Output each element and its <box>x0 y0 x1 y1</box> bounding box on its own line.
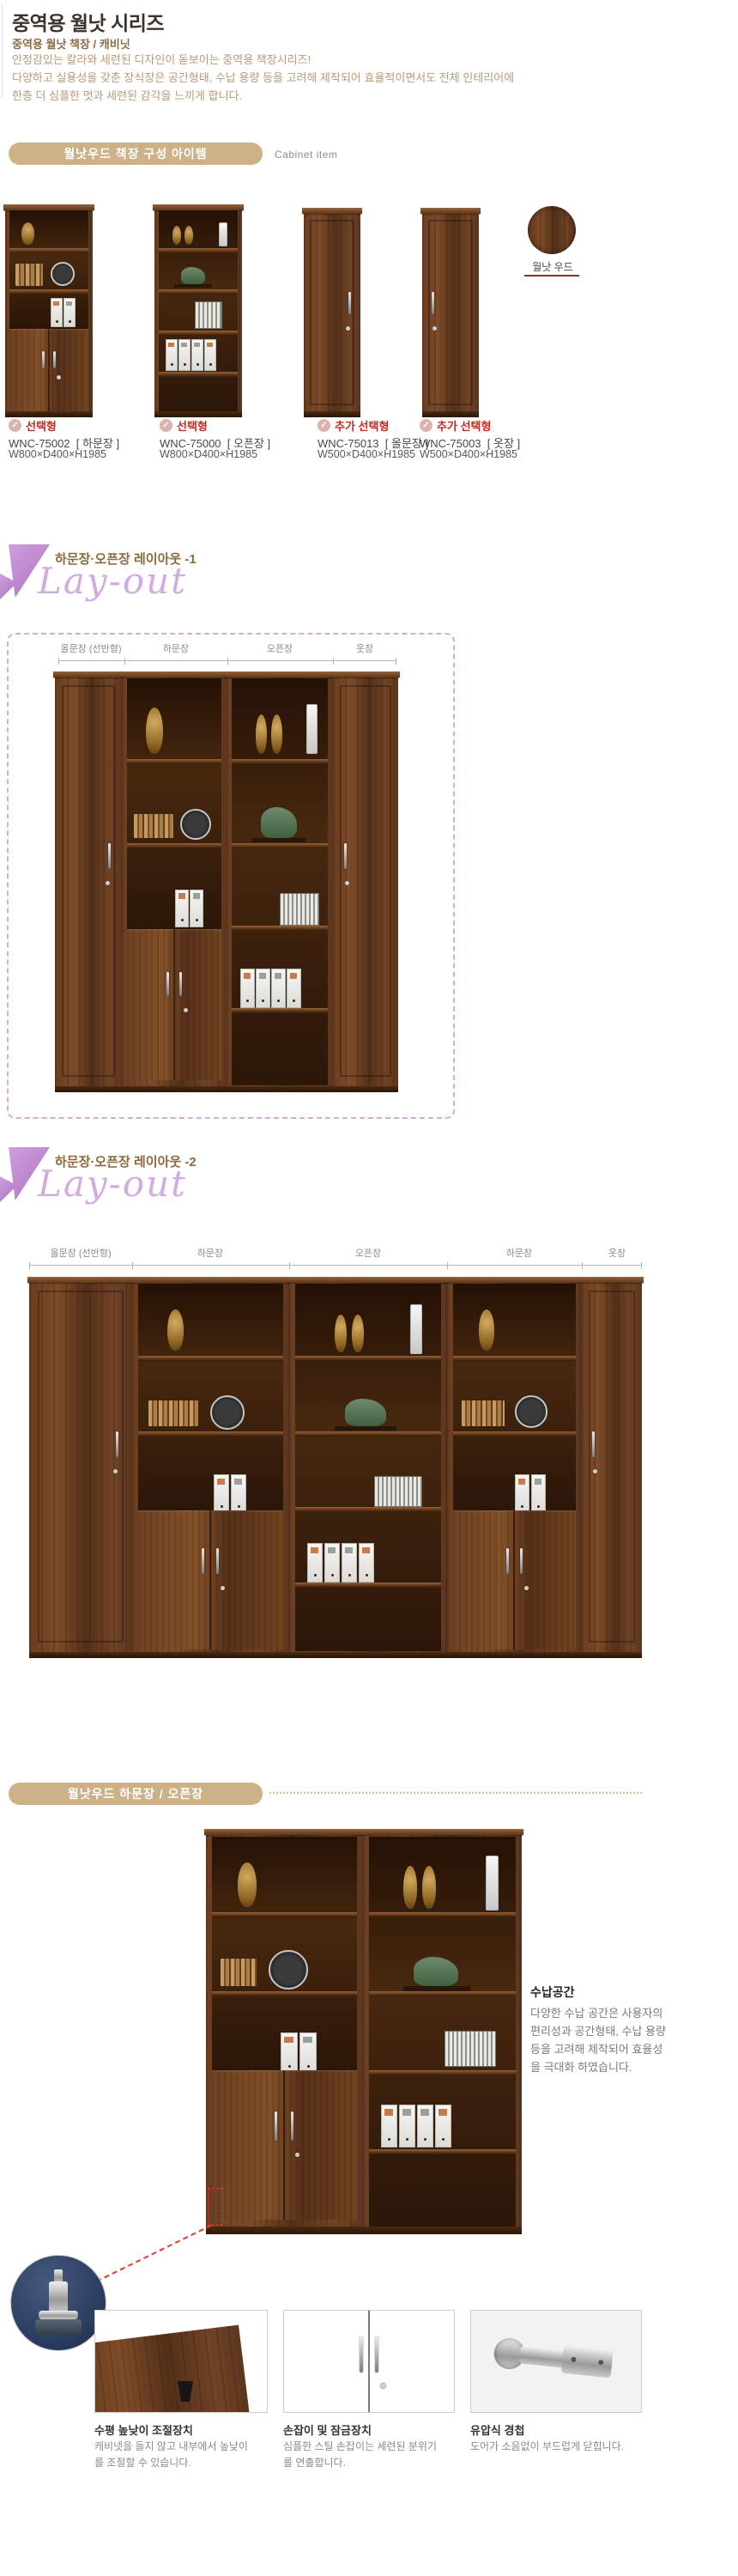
cabinet-crown <box>130 1277 291 1283</box>
award-plate <box>51 262 75 286</box>
detail-photo <box>206 1829 522 2234</box>
dotted-line <box>269 1792 642 1794</box>
shelf <box>295 1507 441 1512</box>
callout-rectangle <box>208 2188 223 2226</box>
cabinet-doors <box>9 329 88 411</box>
storage-line-3: 등을 고려해 제작되어 효율성 <box>530 2040 666 2058</box>
binder <box>399 2105 415 2148</box>
cabinet-plinth <box>5 411 93 417</box>
binder <box>175 890 189 927</box>
feature-title: 손잡이 및 잠금장치 <box>283 2421 372 2438</box>
cabinet-shelves <box>9 210 88 329</box>
shelf <box>159 372 238 377</box>
tick <box>641 1262 642 1269</box>
door-panel <box>428 220 473 405</box>
door-seam <box>283 2070 285 2220</box>
cabinet-doors <box>212 2070 357 2220</box>
layout2-script: Lay-out <box>38 1163 187 1205</box>
hinge-arm <box>519 2346 566 2367</box>
storage-title: 수납공간 <box>530 1984 575 2001</box>
door-handle <box>506 1548 509 1574</box>
cabinet-plinth <box>154 411 242 417</box>
section-label: 올문장 (선반형) <box>44 641 138 655</box>
keyhole <box>524 1586 529 1590</box>
keyhole <box>593 1469 597 1473</box>
cabinet-shelves <box>232 678 328 1085</box>
tick <box>582 1262 583 1269</box>
feature-description: 도어가 소음없이 부드럽게 닫힙니다. <box>470 2439 676 2455</box>
shelf <box>138 1356 283 1361</box>
cabinet-shelves <box>138 1284 283 1510</box>
badge-label: 선택형 <box>177 417 208 434</box>
cabinet-crown <box>225 671 335 677</box>
foot-flange <box>39 2311 78 2319</box>
layout1-lower-door-cabinet <box>122 671 227 1092</box>
binder <box>324 1543 340 1583</box>
keyhole <box>380 2383 386 2389</box>
door-handle <box>108 843 111 869</box>
statue-base <box>335 1426 396 1431</box>
figurine <box>403 1866 417 1909</box>
feature-line: 를 연출합니다. <box>283 2455 470 2471</box>
statue-base <box>252 838 305 842</box>
feature-line: 도어가 소음없이 부드럽게 닫힙니다. <box>470 2439 676 2455</box>
detail-lower-door-cabinet <box>206 1829 363 2234</box>
storage-line-4: 을 극대화 하였습니다. <box>530 2058 666 2076</box>
shelf <box>232 926 328 931</box>
cabinet-shelves <box>127 678 221 929</box>
product-dimensions: W800×D400×H1985 <box>160 448 257 460</box>
cabinet-crown <box>204 1829 365 1835</box>
cd-row <box>374 1476 422 1507</box>
section-label: 옷장 <box>570 1246 664 1260</box>
door-seam <box>368 2311 370 2412</box>
callout-line <box>96 2225 212 2282</box>
cabinet-plinth <box>29 1652 132 1658</box>
statue <box>414 1957 458 1986</box>
section-label: 하문장 <box>163 1246 257 1260</box>
shelf <box>9 289 88 295</box>
door-panel <box>38 1291 124 1643</box>
product-badge: ✓추가 선택형 <box>420 417 491 434</box>
cabinet-doors <box>453 1510 576 1649</box>
storage-description: 다양한 수납 공간은 사용자의 편리성과 공간형태, 수납 용량 등을 고려해 … <box>530 2004 666 2076</box>
hinge-plate <box>561 2346 614 2379</box>
page-description: 안정감있는 칼라와 세련된 디자인이 돋보이는 중역용 책장시리즈! 다양하고 … <box>12 51 514 105</box>
shelf <box>127 843 221 848</box>
shelf <box>453 1356 576 1361</box>
door-handle <box>116 1431 118 1457</box>
door-seam <box>209 1510 211 1649</box>
cabinet-plinth <box>132 1652 289 1658</box>
cabinet-plinth <box>206 2227 363 2234</box>
tick <box>58 658 59 665</box>
keyhole <box>184 1008 188 1012</box>
foot-base <box>35 2319 82 2335</box>
door-handle <box>275 2111 277 2141</box>
bust-figurine <box>167 1309 184 1351</box>
binder <box>204 339 216 371</box>
vase <box>486 1856 499 1911</box>
door-handle <box>592 1431 595 1457</box>
binder <box>342 1543 357 1583</box>
feature-line: 심플한 스틸 손잡이는 세련된 분위기 <box>283 2439 470 2455</box>
door-seam <box>513 1510 515 1649</box>
vase <box>410 1304 422 1354</box>
feature-title: 유압식 경첩 <box>470 2421 524 2438</box>
cabinet-shelves <box>453 1284 576 1510</box>
binder <box>417 2105 433 2148</box>
shelf <box>453 1431 576 1437</box>
cabinet-crown <box>420 208 481 214</box>
walnut-wood-swatch <box>528 206 576 254</box>
layout1-full-door-cabinet <box>55 671 122 1092</box>
keyhole <box>346 326 350 331</box>
statue <box>345 1399 386 1426</box>
door-handle <box>520 1548 523 1574</box>
binder <box>515 1474 529 1514</box>
award-plate <box>515 1395 547 1428</box>
cabinet-plinth <box>422 411 479 417</box>
binder <box>64 298 76 327</box>
layout1-script: Lay-out <box>38 560 187 602</box>
storage-line-1: 다양한 수납 공간은 사용자의 <box>530 2004 666 2022</box>
cabinet-crown <box>580 1277 644 1283</box>
cabinet-crown <box>302 208 362 214</box>
cd-row <box>195 301 222 329</box>
binder <box>178 339 191 371</box>
figurine <box>271 714 282 754</box>
hinge-illustration <box>491 2330 624 2394</box>
section-label: 올문장 (선반형) <box>33 1246 128 1260</box>
shelf <box>212 1991 357 1996</box>
cabinet-crown <box>361 1829 523 1835</box>
door-handle <box>53 351 56 368</box>
shelf <box>369 1912 516 1917</box>
door-handle <box>432 292 434 314</box>
books <box>15 264 43 286</box>
door-handle <box>42 351 45 368</box>
cabinet-shelves <box>159 210 238 411</box>
door-panel <box>589 1291 635 1643</box>
tick <box>29 1262 30 1269</box>
tick <box>396 658 396 665</box>
product-dimensions: W800×D400×H1985 <box>9 448 106 460</box>
binder <box>359 1543 374 1583</box>
figurine <box>352 1315 364 1352</box>
cabinet-crown <box>331 671 400 677</box>
shelf <box>9 248 88 253</box>
product-badge: ✓선택형 <box>160 417 208 434</box>
binder <box>531 1474 546 1514</box>
binder <box>299 2032 317 2074</box>
statue-base <box>403 1986 470 1991</box>
award-plate <box>210 1395 245 1430</box>
door-handle <box>216 1548 219 1574</box>
layout1-photo <box>55 671 398 1092</box>
section-bar-cabinet-items: 월낫우드 책장 구성 아이템 <box>9 143 263 165</box>
section-bar-detail: 월낫우드 하문장 / 오픈장 <box>9 1783 263 1805</box>
books <box>462 1400 505 1426</box>
feature-photo-handle-lock <box>283 2310 455 2413</box>
binder <box>190 890 203 927</box>
product-dimensions: W500×D400×H1985 <box>318 448 415 460</box>
books <box>148 1400 198 1426</box>
product-image-wardrobe <box>422 208 479 417</box>
product-image-open-cabinet <box>154 204 242 417</box>
badge-label: 추가 선택형 <box>335 417 389 434</box>
shelf <box>369 2149 516 2154</box>
tick <box>132 1262 133 1269</box>
check-icon: ✓ <box>318 419 330 432</box>
layout2-wardrobe <box>582 1277 642 1658</box>
section-bar-side-label: Cabinet item <box>275 149 337 161</box>
swatch-label: 월낫 우드 <box>519 259 586 274</box>
door-handle <box>344 843 347 869</box>
binder <box>287 969 301 1008</box>
section-label: 옷장 <box>318 641 412 655</box>
figurine <box>335 1315 347 1352</box>
shelf <box>232 759 328 764</box>
binder <box>231 1474 246 1514</box>
binder <box>381 2105 397 2148</box>
keyhole <box>433 326 437 331</box>
statue <box>181 267 205 284</box>
foot-shaft <box>49 2281 68 2312</box>
dimension-line <box>29 1265 642 1266</box>
door-handle <box>348 292 351 314</box>
detail-open-cabinet <box>363 1829 522 2234</box>
shelf <box>232 843 328 848</box>
cabinet-crown <box>445 1277 584 1283</box>
feature-line: 캐비넷을 들지 않고 내부에서 높낮이 <box>94 2439 281 2455</box>
cabinet-crown <box>53 671 124 677</box>
figurine <box>422 1866 436 1909</box>
door-handle <box>360 2336 363 2372</box>
shelf <box>159 331 238 336</box>
cabinet-plinth <box>363 2227 522 2234</box>
bust-figurine <box>479 1309 494 1351</box>
product-dimensions: W500×D400×H1985 <box>420 448 517 460</box>
figurine <box>256 714 267 754</box>
binder <box>256 969 270 1008</box>
badge-label: 추가 선택형 <box>437 417 491 434</box>
figurine <box>172 226 181 245</box>
cabinet-crown <box>3 204 94 210</box>
cd-row <box>445 2031 496 2067</box>
cabinet-crown <box>27 1277 134 1283</box>
check-icon: ✓ <box>420 419 433 432</box>
description-line-1: 안정감있는 칼라와 세련된 디자인이 돋보이는 중역용 책장시리즈! <box>12 51 514 69</box>
cabinet-doors <box>138 1510 283 1649</box>
feature-photo-level-adjuster <box>94 2310 268 2413</box>
cabinet-plinth <box>582 1652 642 1658</box>
layout2-full-door-cabinet <box>29 1277 132 1658</box>
bust-figurine <box>146 708 163 754</box>
leveling-foot-photo <box>11 2256 106 2350</box>
door-handle <box>291 2111 293 2141</box>
tick <box>447 1262 448 1269</box>
section-label: 오픈장 <box>321 1246 415 1260</box>
description-line-3: 한층 더 심플한 멋과 세련된 감각을 느끼게 합니다. <box>12 87 514 105</box>
page-subtitle: 중역용 월낫 책장 / 캐비닛 <box>12 35 130 52</box>
binder <box>435 2105 451 2148</box>
product-detail-page: 중역용 월낫 시리즈 중역용 월낫 책장 / 캐비닛 안정감있는 칼라와 세련된… <box>0 0 738 2576</box>
cabinet-crown <box>120 671 228 677</box>
check-icon: ✓ <box>9 419 21 432</box>
books <box>221 1959 257 1986</box>
binder <box>240 969 255 1008</box>
shelf <box>212 1912 357 1917</box>
award-plate <box>269 1950 308 1990</box>
section-label: 하문장 <box>472 1246 566 1260</box>
dimension-line <box>58 660 396 661</box>
shelf <box>369 1991 516 1996</box>
statue-base <box>174 284 212 288</box>
layout2-lower-door-cabinet <box>132 1277 289 1658</box>
cd-row <box>280 893 319 926</box>
left-border-line <box>2 5 3 98</box>
storage-line-2: 편리성과 공간형태, 수납 용량 <box>530 2022 666 2040</box>
binder <box>307 1543 323 1583</box>
door-handle <box>375 2336 378 2372</box>
section-label: 하문장 <box>129 641 223 655</box>
feature-line: 를 조절할 수 있습니다. <box>94 2455 281 2471</box>
product-badge: ✓선택형 <box>9 417 57 434</box>
shelf <box>295 1583 441 1588</box>
door-handle <box>166 972 169 996</box>
cabinet-crown <box>287 1277 449 1283</box>
door-handle <box>202 1548 204 1574</box>
keyhole <box>221 1586 225 1590</box>
description-line-2: 다양하고 실용성을 갖춘 장식장은 공간형태, 수납 용량 등을 고려해 제작되… <box>12 69 514 87</box>
check-icon: ✓ <box>160 419 172 432</box>
cabinet-plinth <box>289 1652 447 1658</box>
cabinet-shelves <box>295 1284 441 1651</box>
shelf <box>232 1008 328 1013</box>
badge-label: 선택형 <box>26 417 57 434</box>
shelf <box>159 248 238 253</box>
feature-description: 심플한 스틸 손잡이는 세련된 분위기 를 연출합니다. <box>283 2439 470 2471</box>
layout1-open-cabinet <box>227 671 333 1092</box>
layout2-lower-door-cabinet-2 <box>447 1277 582 1658</box>
figurine <box>184 226 193 245</box>
cabinet-plinth <box>333 1086 398 1092</box>
keyhole <box>295 2153 299 2157</box>
keyhole <box>106 881 110 885</box>
binder <box>271 969 286 1008</box>
cabinet-shelves <box>369 1837 516 2227</box>
shelf <box>127 759 221 764</box>
books <box>134 814 173 838</box>
swatch-underline <box>524 275 579 276</box>
bust-figurine <box>238 1862 257 1907</box>
vase <box>219 222 227 246</box>
feature-title: 수평 높낮이 조절장치 <box>94 2421 193 2438</box>
tick <box>124 658 125 665</box>
vase <box>306 704 318 754</box>
cabinet-plinth <box>227 1086 333 1092</box>
binder <box>214 1474 229 1514</box>
binder <box>281 2032 298 2074</box>
feature-photo-hinge <box>470 2310 642 2413</box>
binder <box>51 298 63 327</box>
product-image-full-door-cabinet <box>304 208 360 417</box>
cabinet-plinth <box>122 1086 227 1092</box>
layout2-open-cabinet <box>289 1277 447 1658</box>
binder <box>191 339 203 371</box>
shelf <box>369 2070 516 2075</box>
shelf <box>159 289 238 295</box>
bust-figurine <box>21 222 34 245</box>
cabinet-plinth <box>304 411 360 417</box>
layout2-photo <box>29 1277 642 1658</box>
page-title: 중역용 월낫 시리즈 <box>12 7 164 36</box>
product-image-lower-door-cabinet <box>5 204 93 417</box>
shelf <box>138 1431 283 1437</box>
keyhole <box>113 1469 118 1473</box>
cabinet-crown <box>153 204 244 210</box>
shelf <box>295 1356 441 1361</box>
statue <box>261 807 297 838</box>
door-seam <box>173 929 175 1080</box>
cabinet-shelves <box>212 1837 357 2070</box>
product-badge: ✓추가 선택형 <box>318 417 389 434</box>
tick <box>227 658 228 665</box>
layout1-wardrobe <box>333 671 398 1092</box>
cabinet-plinth <box>447 1652 582 1658</box>
tick <box>333 658 334 665</box>
keyhole <box>57 375 61 380</box>
tick <box>289 1262 290 1269</box>
award-plate <box>180 809 211 840</box>
binder <box>166 339 178 371</box>
section-label: 오픈장 <box>233 641 327 655</box>
door-handle <box>179 972 182 996</box>
door-seam <box>48 329 50 411</box>
keyhole <box>345 881 349 885</box>
feature-description: 캐비넷을 들지 않고 내부에서 높낮이 를 조절할 수 있습니다. <box>94 2439 281 2471</box>
cabinet-doors <box>127 929 221 1080</box>
shelf <box>295 1431 441 1437</box>
wood-panel <box>94 2325 251 2413</box>
cabinet-plinth <box>55 1086 122 1092</box>
